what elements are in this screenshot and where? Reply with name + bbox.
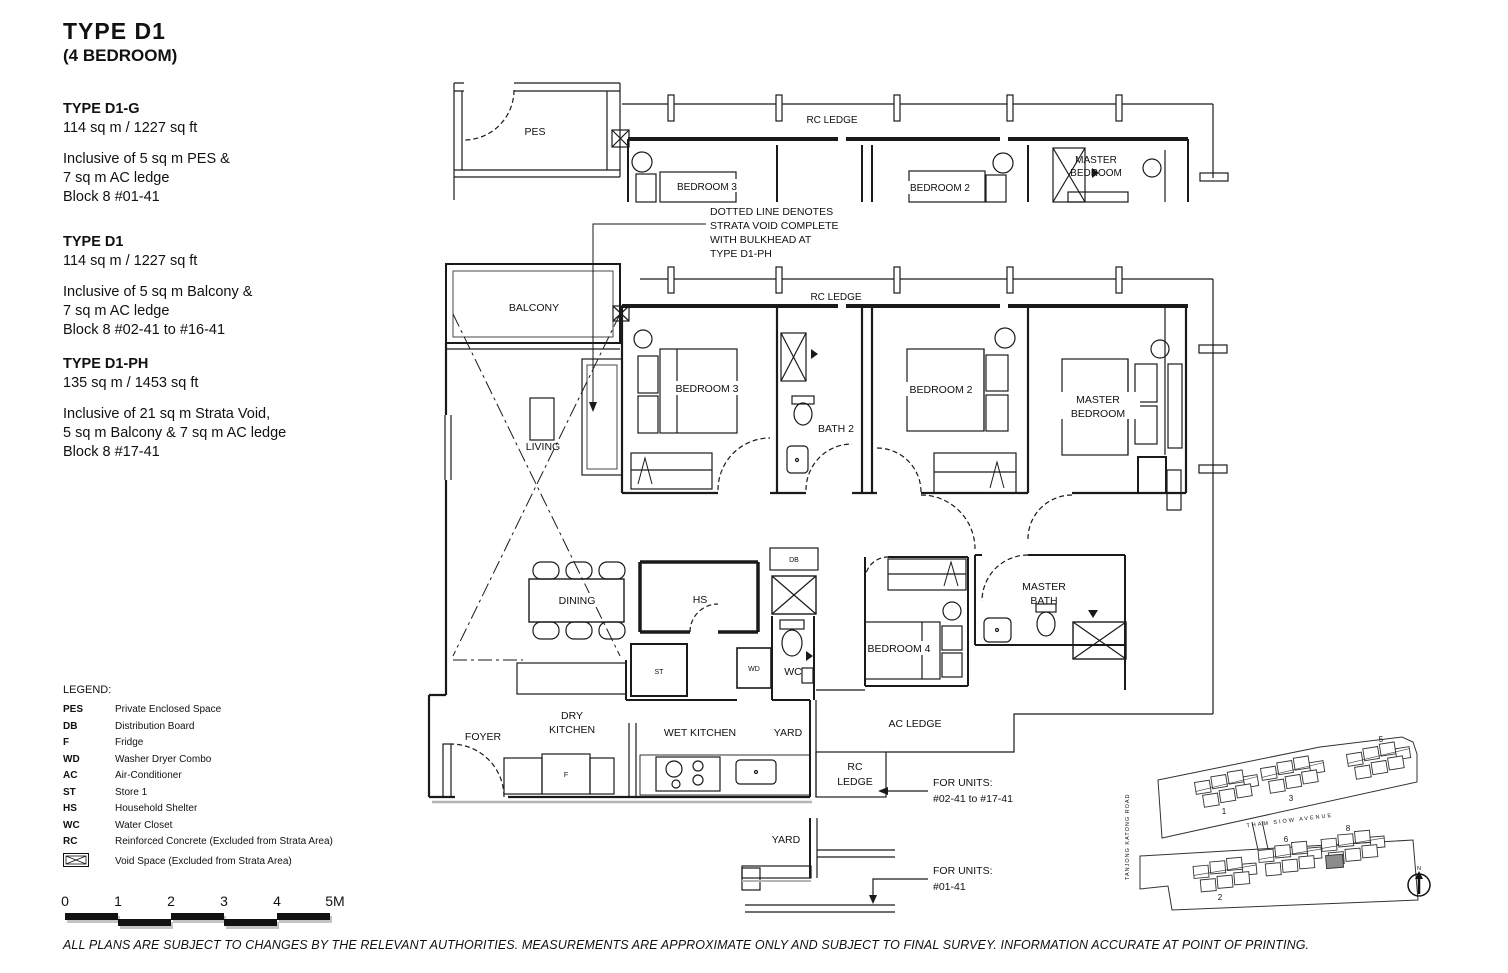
room-label-hs: HS [693,594,708,606]
annotation-line: STRATA VOID COMPLETE [710,220,839,232]
page-subtitle: (4 BEDROOM) [63,46,177,66]
spec-desc: Inclusive of 21 sq m Strata Void, [63,405,286,424]
room-label-master-bath: BATH [1030,595,1057,607]
kitchen-counter [517,663,626,694]
block-number: 1 [1222,807,1227,816]
spec-desc: Block 8 #02-41 to #16-41 [63,321,252,340]
highlighted-unit [1326,854,1344,868]
bedroom2 [877,328,1016,493]
road-label-tham-siow: THAM SIOW AVENUE [1246,813,1333,830]
spec-type-d1: TYPE D1 114 sq m / 1227 sq ft Inclusive … [63,233,252,340]
bedroom4 [865,557,968,686]
block-number: 5 [1379,735,1384,744]
scale-tick: 5M [325,893,344,909]
pes-door-arc [464,90,514,140]
room-label-db: DB [789,557,799,564]
for-units-lower: FOR UNITS: [933,865,993,877]
block-cluster-5 [1346,740,1413,780]
yard-detail [742,818,928,912]
spec-area: 114 sq m / 1227 sq ft [63,119,230,138]
scale-tick: 0 [61,893,69,909]
bedroom3 [631,330,770,490]
north-label: N [1417,866,1421,872]
hall-door-arc [921,495,975,549]
scale-bar-segment [277,913,330,920]
room-label-dry-kitchen: KITCHEN [549,724,595,736]
site-key-plan: 1 3 5 2 6 8 THAM SIOW AVENUE TANJONG KAT… [1118,735,1508,920]
spec-type-d1g: TYPE D1-G 114 sq m / 1227 sq ft Inclusiv… [63,100,230,207]
legend-row: PESPrivate Enclosed Space [63,704,333,715]
room-label-master: MASTER [1075,155,1117,166]
legend-row: WDWasher Dryer Combo [63,754,333,765]
spec-area: 135 sq m / 1453 sq ft [63,374,286,393]
legend-row-void: Void Space (Excluded from Strata Area) [63,853,333,870]
room-label-rc: RC [847,761,863,773]
room-label-fridge: F [564,772,568,779]
spec-name: TYPE D1-PH [63,355,286,374]
spec-desc: Inclusive of 5 sq m Balcony & [63,283,252,302]
room-label-bath2: BATH 2 [818,423,854,435]
room-label-master: MASTER [1076,394,1120,406]
for-units-upper: FOR UNITS: [933,777,993,789]
room-label-master: BEDROOM [1070,168,1122,179]
block-number: 2 [1218,893,1223,902]
room-label-bedroom4: BEDROOM 4 [867,643,930,655]
room-label-bedroom2: BEDROOM 2 [909,384,972,396]
room-label-master-bath: MASTER [1022,581,1066,593]
room-label-wet-kitchen: WET KITCHEN [664,727,736,739]
spec-desc: 7 sq m AC ledge [63,302,252,321]
block-number: 6 [1284,835,1289,844]
legend-row: DBDistribution Board [63,721,333,732]
spec-desc: 7 sq m AC ledge [63,169,230,188]
void-space-icon [772,576,816,614]
scale-tick: 2 [167,893,175,909]
disclaimer-text: ALL PLANS ARE SUBJECT TO CHANGES BY THE … [63,938,1503,952]
mini-plan-d1g [454,80,1228,202]
block-number: 3 [1289,794,1294,803]
scale-bar-segment [224,919,277,926]
block-cluster-1 [1194,768,1261,808]
scale-bar-segment [65,913,118,920]
room-label-st: ST [655,669,665,676]
entrance-door-arc [451,744,504,797]
wc [772,616,814,700]
room-label-living: LIVING [526,441,560,453]
bath2 [781,333,852,490]
living-furniture [530,359,622,475]
scale-tick: 3 [220,893,228,909]
for-units-upper: #02-41 to #17-41 [933,793,1013,805]
room-label-foyer: FOYER [465,731,502,743]
spec-desc: 5 sq m Balcony & 7 sq m AC ledge [63,424,286,443]
annotation-line: TYPE D1-PH [710,248,772,260]
wet-kitchen [640,755,810,795]
room-label-dining: DINING [559,595,596,607]
room-label-pes: PES [524,126,545,138]
room-label-yard-detail: YARD [772,834,801,846]
room-label-bedroom3: BEDROOM 3 [675,383,738,395]
void-space-icon [1073,622,1126,659]
spec-area: 114 sq m / 1227 sq ft [63,252,252,271]
for-units-upper-arrow [878,787,928,795]
master-bath [975,555,1126,690]
spec-name: TYPE D1-G [63,100,230,119]
main-plan [429,264,1227,912]
legend-row: RCReinforced Concrete (Excluded from Str… [63,836,333,847]
scale-bar-segment [118,919,171,926]
spec-name: TYPE D1 [63,233,252,252]
block-number: 8 [1346,824,1351,833]
north-arrow-icon: N [1408,866,1430,896]
strata-void-x [453,314,620,660]
spec-desc: Block 8 #17-41 [63,443,286,462]
room-label-bedroom3: BEDROOM 3 [677,182,737,193]
room-label-wd: WD [748,666,760,673]
void-space-icon [781,333,806,381]
scale-tick: 1 [114,893,122,909]
scale-tick: 4 [273,893,281,909]
room-label-ac-ledge: AC LEDGE [888,718,941,730]
room-label-ledge: LEDGE [837,776,873,788]
for-units-lower: #01-41 [933,881,966,893]
scale-bar-segment [171,913,224,920]
room-label-rc-ledge: RC LEDGE [806,115,857,126]
legend: LEGEND: PESPrivate Enclosed Space DBDist… [63,684,333,875]
master-bedroom [1028,306,1182,539]
exterior-walls [429,343,810,797]
block-cluster-3 [1260,754,1327,794]
legend-row: FFridge [63,737,333,748]
annotation-line: WITH BULKHEAD AT [710,234,812,246]
spec-desc: Inclusive of 5 sq m PES & [63,150,230,169]
legend-row: HSHousehold Shelter [63,803,333,814]
room-label-bedroom2: BEDROOM 2 [910,183,970,194]
spec-desc: Block 8 #01-41 [63,188,230,207]
legend-row: WCWater Closet [63,820,333,831]
block-cluster-2 [1193,856,1258,892]
annotation-line: DOTTED LINE DENOTES [710,206,833,218]
room-label-dry-kitchen: DRY [561,710,583,722]
room-label-master: BEDROOM [1071,408,1125,420]
scale-bar: 0 1 2 3 4 5M [63,893,343,929]
room-label-wc: WC [784,666,802,678]
legend-title: LEGEND: [63,684,333,696]
room-label-rc-ledge: RC LEDGE [810,292,861,303]
page-title: TYPE D1 [63,18,166,45]
legend-row: ACAir-Conditioner [63,770,333,781]
room-label-balcony: BALCONY [509,302,559,314]
room-label-yard: YARD [774,727,803,739]
road-label-tanjong-katong: TANJONG KATONG ROAD [1125,793,1131,880]
plan-labels: PES RC LEDGE BEDROOM 3 BEDROOM 2 MASTER … [465,115,1125,893]
void-space-icon [63,853,115,870]
spec-type-d1ph: TYPE D1-PH 135 sq m / 1453 sq ft Inclusi… [63,355,286,462]
legend-row: STStore 1 [63,787,333,798]
